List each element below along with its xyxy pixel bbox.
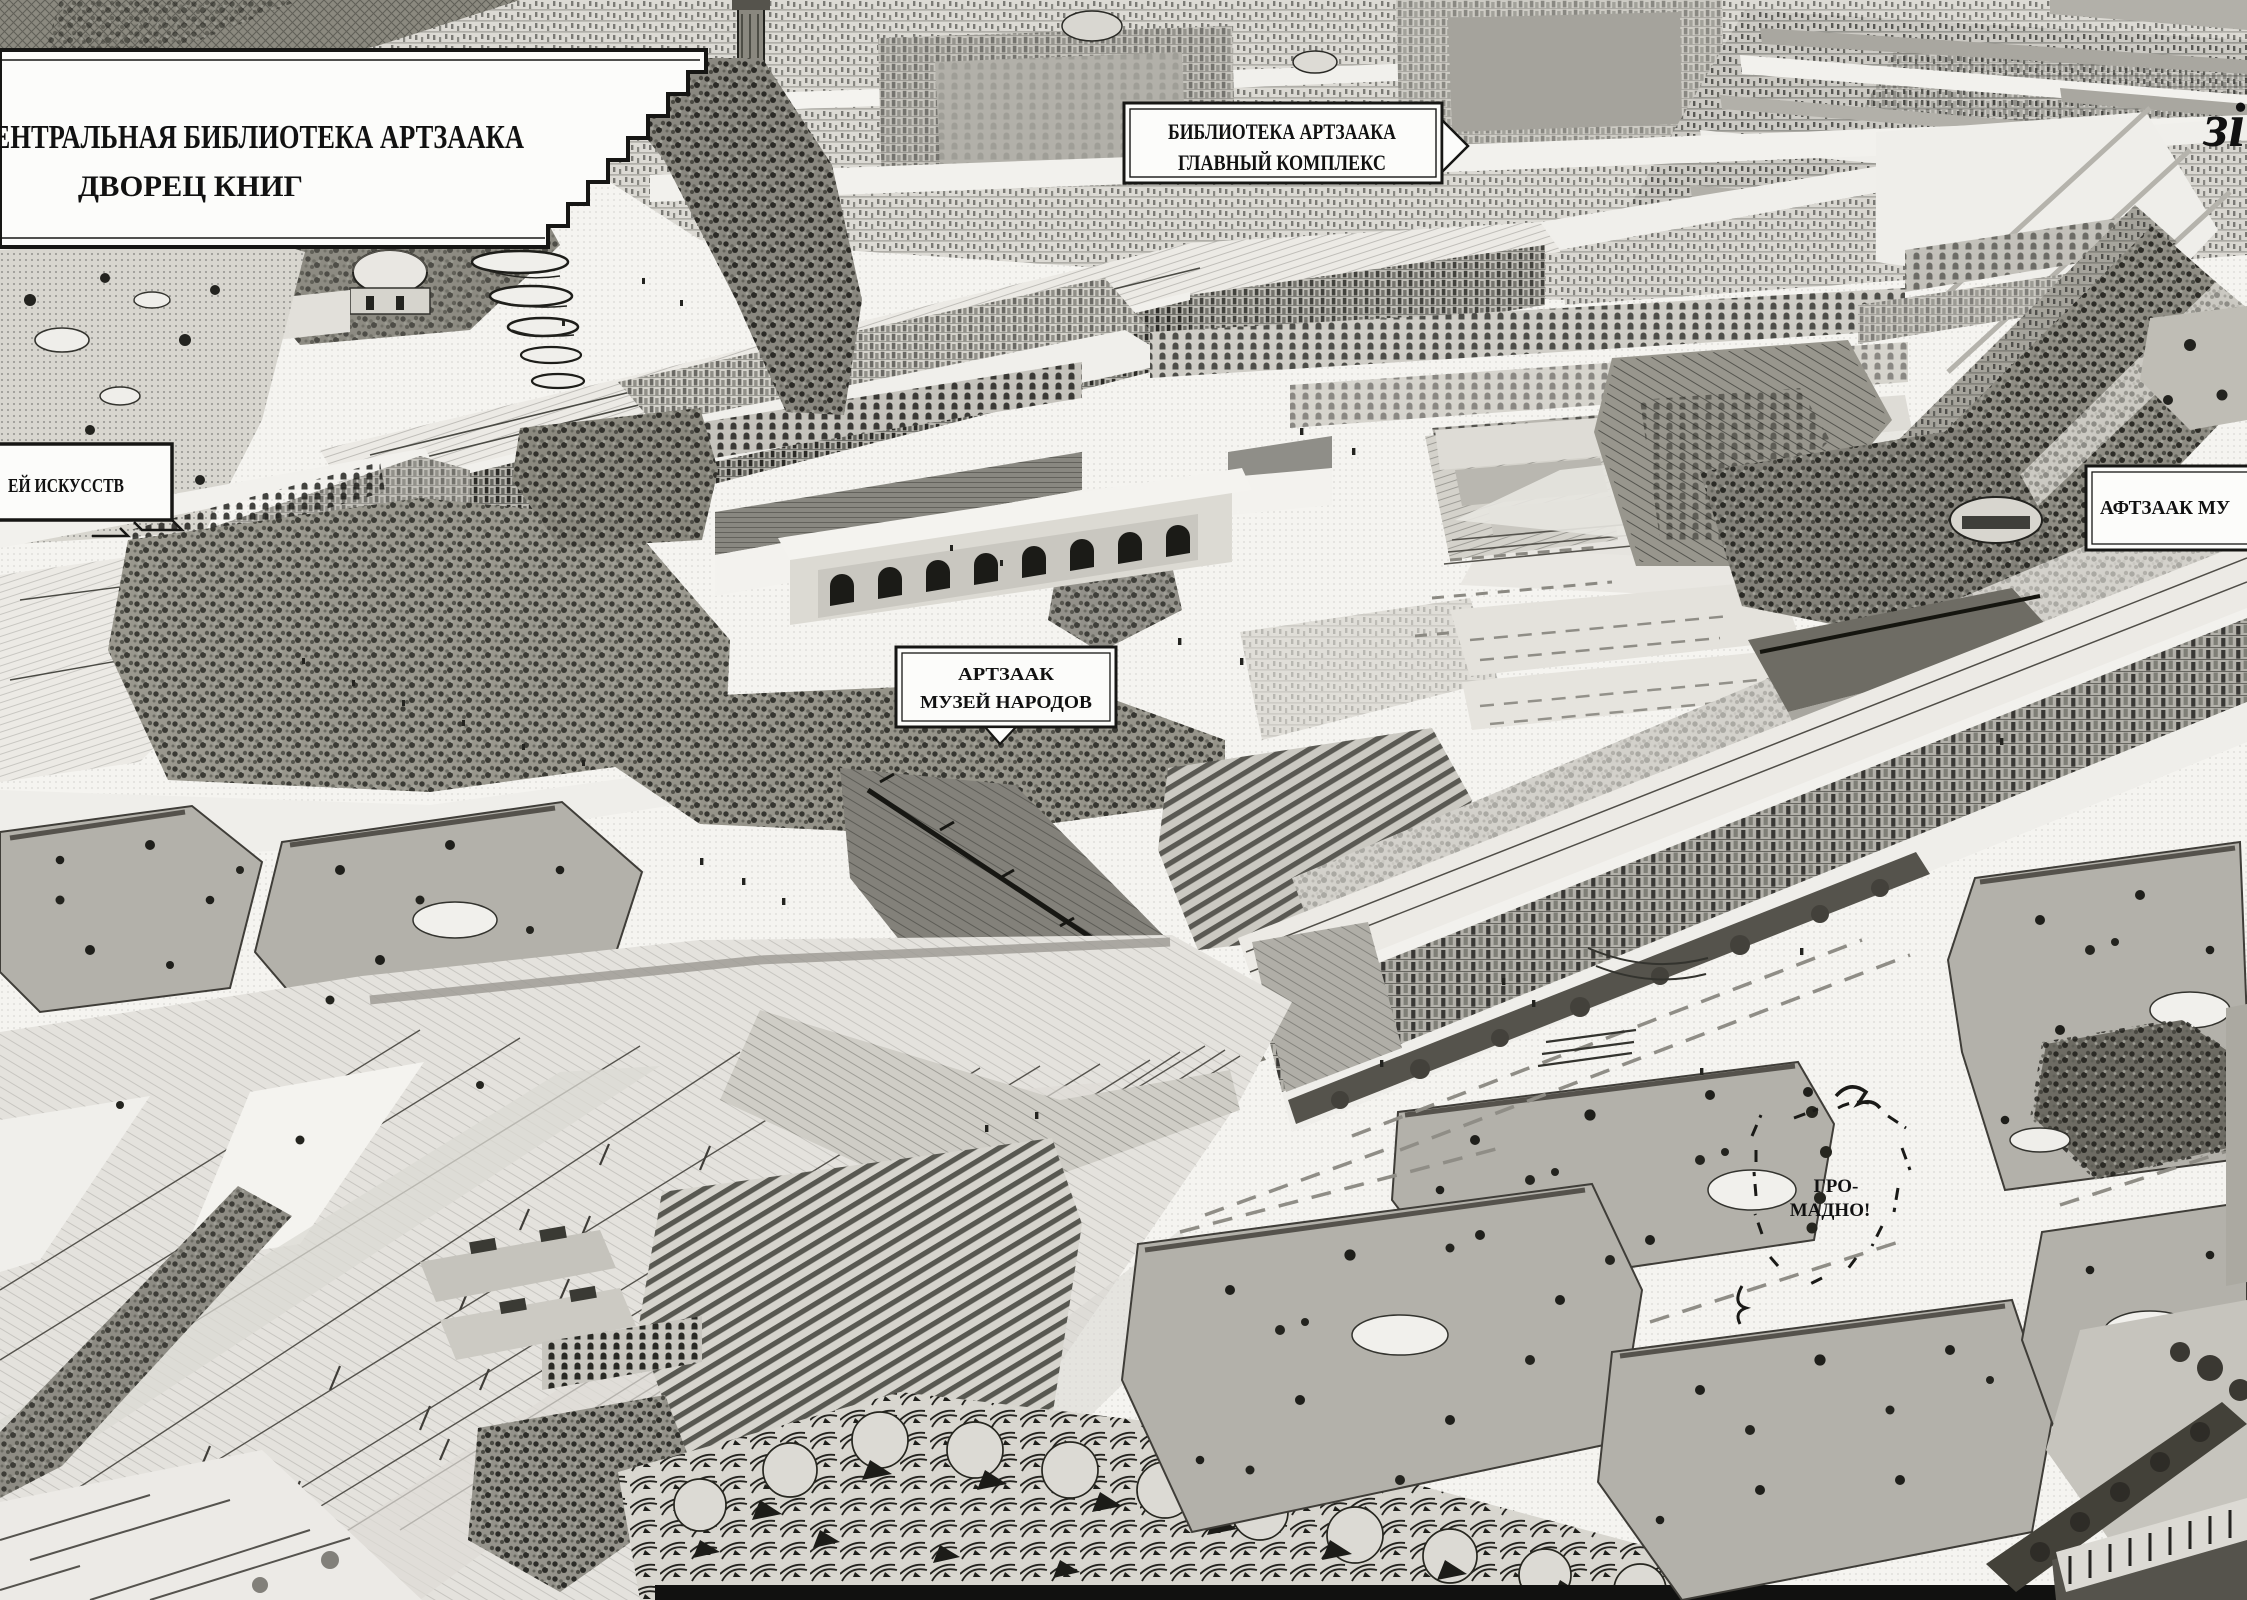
svg-text:ЕЙ ИСКУССТВ: ЕЙ ИСКУССТВ <box>8 474 124 497</box>
svg-text:БИБЛИОТЕКА АРТЗААКА: БИБЛИОТЕКА АРТЗААКА <box>1168 119 1396 144</box>
svg-text:ГРО-: ГРО- <box>1814 1176 1859 1197</box>
svg-text:зі: зі <box>2202 92 2245 160</box>
svg-text:ГЛАВНЫЙ КОМПЛЕКС: ГЛАВНЫЙ КОМПЛЕКС <box>1178 150 1386 175</box>
svg-text:МАДНО!: МАДНО! <box>1790 1200 1871 1221</box>
svg-text:АФТЗААК МУ: АФТЗААК МУ <box>2100 497 2230 519</box>
svg-text:ДВОРЕЦ КНИГ: ДВОРЕЦ КНИГ <box>78 170 303 203</box>
svg-text:МУЗЕЙ НАРОДОВ: МУЗЕЙ НАРОДОВ <box>920 691 1092 712</box>
svg-text:ЦЕНТРАЛЬНАЯ БИБЛИОТЕКА АРТЗААК: ЦЕНТРАЛЬНАЯ БИБЛИОТЕКА АРТЗААКА <box>0 119 524 156</box>
svg-text:АРТЗААК: АРТЗААК <box>958 664 1054 684</box>
